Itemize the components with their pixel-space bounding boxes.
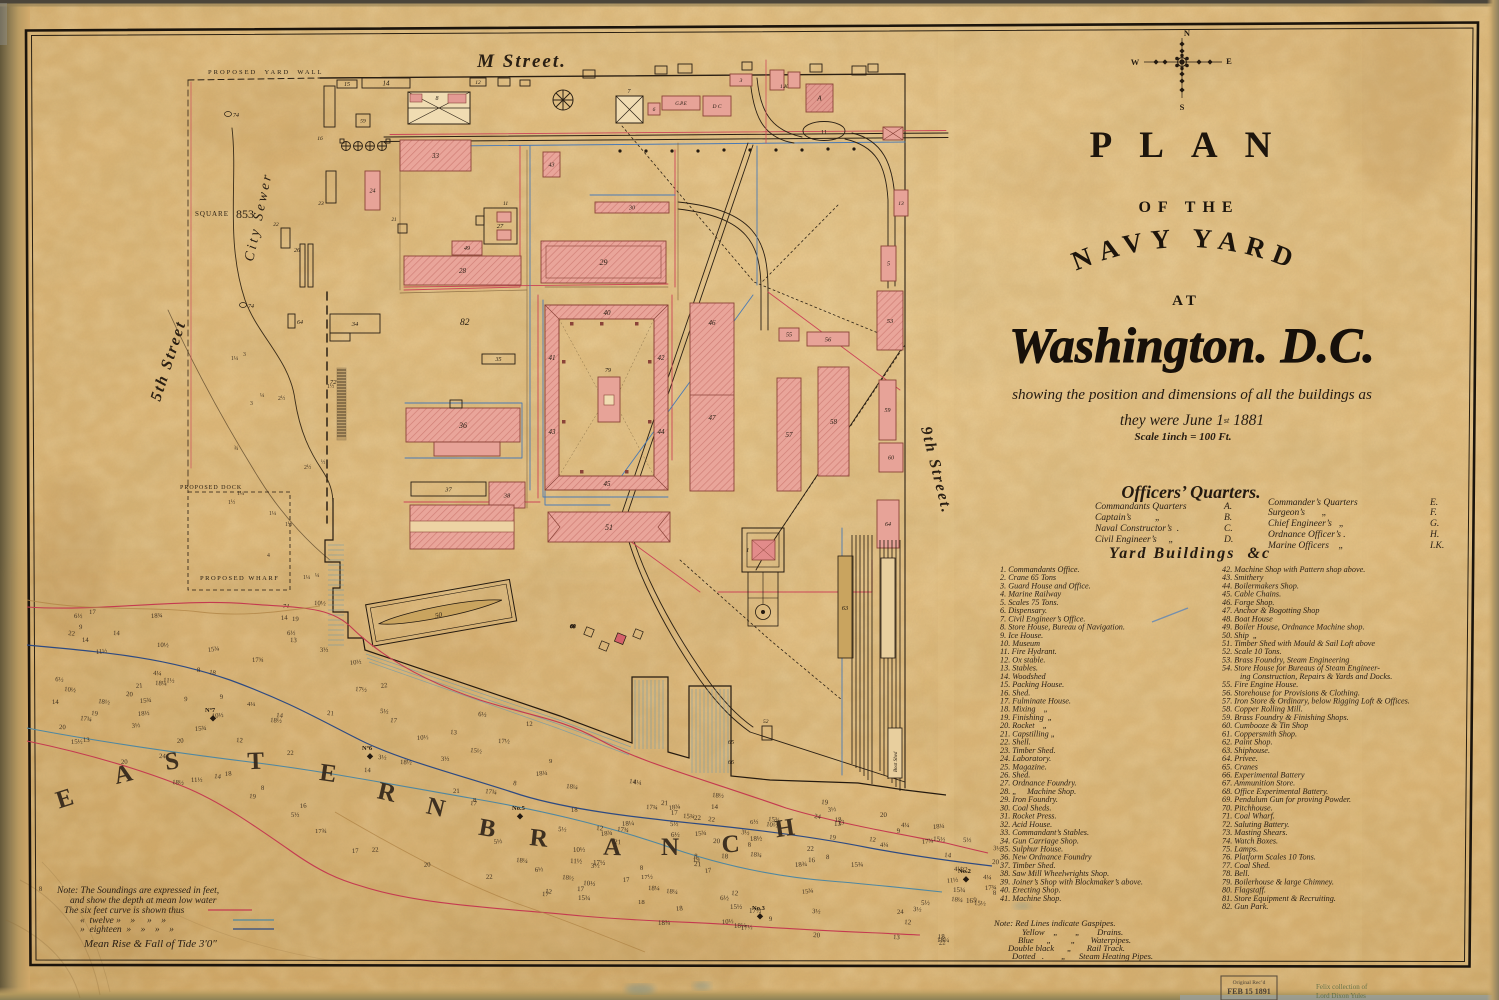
- svg-text:29: 29: [600, 258, 608, 267]
- svg-text:14: 14: [383, 79, 391, 87]
- svg-text:1½: 1½: [228, 499, 236, 506]
- svg-text:3½: 3½: [131, 722, 140, 730]
- svg-text:18¾: 18¾: [794, 860, 807, 869]
- svg-text:18¾: 18¾: [658, 919, 670, 927]
- svg-text:60: 60: [888, 456, 894, 462]
- svg-text:17½: 17½: [641, 874, 653, 881]
- svg-text:16: 16: [317, 136, 323, 142]
- svg-text:The six feet curve is shown th: The six feet curve is shown thus: [64, 905, 185, 916]
- svg-text:Nº6: Nº6: [362, 745, 373, 752]
- svg-text:20: 20: [424, 861, 432, 869]
- svg-text:18: 18: [571, 807, 579, 814]
- svg-text:A.: A.: [1223, 502, 1232, 512]
- svg-text:64: 64: [297, 319, 303, 326]
- svg-text:22: 22: [372, 846, 379, 854]
- svg-text:18: 18: [675, 904, 683, 913]
- svg-text:N: N: [1184, 28, 1191, 38]
- svg-text:1½: 1½: [285, 521, 293, 528]
- svg-text:12: 12: [869, 836, 877, 844]
- svg-text:38: 38: [503, 492, 511, 499]
- svg-text:Marine Officers „: Marine Officers „: [1267, 540, 1344, 551]
- svg-text:PLAN: PLAN: [1090, 125, 1299, 166]
- svg-text:15¾: 15¾: [801, 888, 813, 896]
- svg-text:F.: F.: [1429, 508, 1437, 518]
- svg-text:45: 45: [604, 480, 612, 488]
- svg-text:2½: 2½: [304, 464, 312, 471]
- svg-text:Civil Engineer’s „: Civil Engineer’s „: [1095, 535, 1174, 545]
- svg-text:6½: 6½: [74, 613, 82, 620]
- svg-text:3½: 3½: [320, 647, 329, 654]
- svg-text:79: 79: [605, 368, 611, 374]
- svg-text:12: 12: [904, 918, 912, 927]
- svg-text:30: 30: [628, 206, 635, 212]
- svg-text:18½: 18½: [400, 759, 412, 766]
- svg-text:22: 22: [694, 814, 702, 822]
- svg-text:Chief Engineer’s „: Chief Engineer’s „: [1268, 518, 1344, 529]
- svg-text:Captain’s „: Captain’s „: [1095, 513, 1160, 523]
- svg-text:17: 17: [89, 609, 96, 616]
- svg-text:18¼: 18¼: [622, 819, 635, 828]
- svg-text:82: 82: [460, 318, 470, 328]
- svg-text:64: 64: [885, 521, 891, 528]
- svg-text:OF THE: OF THE: [1138, 199, 1239, 216]
- svg-text:6½: 6½: [55, 676, 64, 684]
- svg-text:18¼: 18¼: [951, 896, 963, 904]
- svg-text:40: 40: [604, 309, 612, 317]
- svg-text:SQUARE: SQUARE: [195, 210, 229, 218]
- svg-text:56: 56: [825, 336, 832, 343]
- svg-text:33: 33: [431, 152, 440, 160]
- svg-text:3: 3: [739, 78, 743, 84]
- svg-text:18¼: 18¼: [566, 783, 578, 791]
- svg-text:Nº7: Nº7: [205, 707, 216, 714]
- svg-text:22: 22: [273, 222, 279, 228]
- svg-text:15¾: 15¾: [578, 894, 590, 902]
- svg-text:47: 47: [709, 414, 717, 422]
- svg-text:18½: 18½: [750, 834, 763, 843]
- svg-text:10½: 10½: [583, 879, 596, 888]
- svg-text:Ordnance Officer’s .: Ordnance Officer’s .: [1268, 529, 1346, 540]
- svg-text:Lord Dixon Yules: Lord Dixon Yules: [1316, 992, 1366, 1000]
- svg-text:3½: 3½: [378, 754, 387, 762]
- svg-text:12: 12: [236, 737, 243, 744]
- svg-text:21: 21: [136, 682, 143, 690]
- svg-text:1¼: 1¼: [231, 356, 239, 362]
- svg-text:Dotted . „ Steam: Dotted . „ Steam Heating Pipes.: [1011, 951, 1153, 961]
- svg-text:18¾: 18¾: [151, 612, 163, 620]
- svg-text:5½: 5½: [963, 837, 971, 844]
- svg-text:10½: 10½: [64, 686, 76, 694]
- svg-text:1¼: 1¼: [269, 511, 277, 517]
- svg-text:22: 22: [807, 845, 815, 853]
- svg-text:22: 22: [380, 682, 388, 690]
- svg-text:20: 20: [59, 724, 67, 731]
- svg-text:5½: 5½: [493, 838, 502, 846]
- svg-text:3½: 3½: [913, 906, 922, 914]
- svg-text:¼: ¼: [260, 393, 265, 399]
- svg-text:14: 14: [52, 699, 59, 706]
- svg-text:and show the depth at mean low: and show the depth at mean low water: [70, 896, 217, 906]
- svg-text:18: 18: [225, 770, 233, 777]
- svg-text:6: 6: [653, 107, 656, 113]
- svg-text:35: 35: [495, 357, 502, 363]
- svg-text:20: 20: [880, 811, 888, 819]
- svg-text:5½: 5½: [670, 821, 678, 828]
- svg-text:18¼: 18¼: [535, 770, 547, 778]
- svg-text:14: 14: [113, 630, 121, 637]
- svg-text:17: 17: [623, 876, 631, 884]
- svg-text:½: ½: [321, 459, 326, 466]
- svg-text:18½: 18½: [562, 874, 574, 882]
- svg-text:27: 27: [497, 223, 504, 230]
- svg-text:53: 53: [887, 318, 894, 325]
- svg-text:B.: B.: [1224, 513, 1232, 523]
- svg-text:20: 20: [177, 737, 185, 744]
- svg-text:66: 66: [728, 760, 734, 766]
- svg-text:Officers’ Quarters.: Officers’ Quarters.: [1121, 482, 1260, 502]
- svg-text:4¼: 4¼: [153, 670, 162, 678]
- svg-text:3½: 3½: [591, 861, 600, 870]
- svg-text:17½: 17½: [498, 738, 510, 745]
- svg-text:74: 74: [233, 112, 239, 119]
- svg-text:Yard Buildings &c: Yard Buildings &c: [1109, 545, 1271, 562]
- svg-text:14: 14: [711, 803, 719, 811]
- svg-text:24: 24: [897, 909, 905, 916]
- svg-text:41: 41: [549, 354, 556, 362]
- svg-text:1: 1: [746, 547, 749, 554]
- svg-text:FEB 15 1891: FEB 15 1891: [1227, 987, 1271, 996]
- svg-text:5½: 5½: [921, 899, 930, 907]
- svg-text:H.: H.: [1429, 530, 1439, 540]
- svg-text:they were June 1st 1881: they were June 1st 1881: [1120, 412, 1264, 429]
- svg-text:18¼: 18¼: [932, 823, 944, 831]
- svg-text:34: 34: [351, 321, 359, 328]
- svg-text:21: 21: [661, 799, 669, 807]
- svg-text:1¼: 1¼: [303, 575, 311, 581]
- svg-text:13: 13: [898, 201, 904, 207]
- svg-text:Mean Rise & Fall of Tide 3′0″: Mean Rise & Fall of Tide 3′0″: [83, 938, 217, 950]
- svg-text:18: 18: [721, 852, 729, 861]
- svg-text:PROPOSED DOCK: PROPOSED DOCK: [180, 485, 242, 491]
- svg-text:22: 22: [708, 816, 715, 824]
- svg-text:49: 49: [464, 245, 470, 252]
- svg-text:E.: E.: [1429, 498, 1438, 508]
- svg-text:82. Gun Park.: 82. Gun Park.: [1222, 902, 1268, 911]
- svg-text:1½: 1½: [327, 383, 335, 390]
- svg-text:W: W: [1131, 57, 1140, 67]
- svg-text:15¾: 15¾: [140, 697, 152, 705]
- svg-text:11½: 11½: [95, 648, 107, 656]
- svg-text:12: 12: [475, 80, 481, 86]
- svg-text:57: 57: [786, 431, 794, 439]
- svg-text:18¼: 18¼: [648, 885, 660, 892]
- svg-text:17: 17: [542, 891, 550, 898]
- svg-text:Surgeon’s „: Surgeon’s „: [1268, 508, 1327, 518]
- svg-text:10½: 10½: [314, 600, 326, 607]
- svg-text:37: 37: [444, 486, 452, 493]
- svg-text:58: 58: [830, 418, 838, 426]
- svg-text:12: 12: [596, 824, 604, 833]
- svg-text:18½: 18½: [138, 710, 150, 718]
- svg-text:10½: 10½: [349, 659, 361, 667]
- svg-text:10½: 10½: [157, 642, 169, 649]
- svg-text:41. Machine Shop.: 41. Machine Shop.: [1000, 894, 1061, 903]
- svg-text:18¾: 18¾: [750, 851, 762, 859]
- svg-text:24: 24: [370, 188, 376, 195]
- svg-text:17¾: 17¾: [252, 657, 264, 664]
- svg-text:4¼: 4¼: [633, 779, 642, 787]
- svg-text:C.: C.: [1224, 524, 1233, 534]
- svg-text:I.K.: I.K.: [1429, 541, 1444, 551]
- svg-text:Scale 1inch = 100 Ft.: Scale 1inch = 100 Ft.: [1134, 431, 1231, 443]
- svg-text:52: 52: [763, 719, 769, 725]
- svg-text:3: 3: [250, 401, 253, 407]
- svg-text:AT: AT: [1172, 293, 1200, 309]
- svg-text:13: 13: [83, 737, 90, 744]
- svg-text:55: 55: [786, 333, 792, 339]
- svg-text:18¼: 18¼: [734, 922, 747, 930]
- svg-text:10½: 10½: [417, 734, 429, 742]
- svg-text:16: 16: [808, 856, 816, 864]
- svg-text:59: 59: [360, 118, 366, 124]
- svg-text:17½: 17½: [355, 686, 367, 694]
- svg-text:S: S: [1180, 102, 1185, 112]
- svg-text:18½: 18½: [172, 779, 184, 787]
- svg-text:18: 18: [638, 899, 645, 906]
- svg-text:No.5: No.5: [512, 805, 526, 812]
- svg-text:Note: The Soundings are expres: Note: The Soundings are expressed in fee…: [56, 885, 219, 896]
- svg-text:21: 21: [327, 710, 334, 717]
- svg-text:23: 23: [318, 201, 324, 207]
- svg-text:3½: 3½: [827, 806, 836, 814]
- svg-text:Original Rec’d: Original Rec’d: [1233, 980, 1266, 986]
- svg-text:13: 13: [834, 820, 842, 828]
- svg-text:5½: 5½: [558, 826, 567, 834]
- svg-text:10½: 10½: [573, 846, 586, 854]
- svg-text:17: 17: [577, 885, 585, 893]
- svg-text:51: 51: [605, 523, 613, 532]
- svg-text:18¼: 18¼: [666, 888, 678, 896]
- svg-text:14: 14: [82, 637, 89, 644]
- svg-text:26: 26: [294, 248, 300, 254]
- svg-text:63: 63: [842, 605, 849, 612]
- svg-text:5½: 5½: [291, 812, 300, 819]
- svg-text:11½: 11½: [946, 877, 958, 885]
- svg-text:15¾: 15¾: [953, 886, 965, 894]
- svg-text:43: 43: [549, 162, 555, 169]
- svg-text:17: 17: [352, 848, 360, 855]
- svg-text:12: 12: [526, 721, 533, 728]
- svg-text:showing the position and dimen: showing the position and dimensions of a…: [1012, 386, 1372, 403]
- svg-text:11½: 11½: [191, 777, 203, 784]
- svg-text:3½: 3½: [741, 829, 750, 837]
- svg-text:68: 68: [570, 624, 576, 630]
- svg-text:11½: 11½: [570, 857, 582, 865]
- svg-text:44: 44: [658, 428, 666, 436]
- svg-text:15¾: 15¾: [694, 830, 706, 838]
- svg-text:15½: 15½: [730, 903, 742, 911]
- svg-text:3½: 3½: [441, 756, 450, 763]
- svg-text:5½: 5½: [380, 708, 389, 716]
- svg-text:» eighteen » » » »: » eighteen » » » »: [80, 925, 174, 935]
- svg-text:15¾: 15¾: [851, 861, 864, 869]
- svg-text:13: 13: [290, 637, 298, 644]
- svg-text:20: 20: [813, 931, 821, 940]
- svg-text:65: 65: [728, 740, 734, 746]
- svg-text:D.: D.: [1223, 535, 1233, 545]
- svg-text:15: 15: [344, 82, 350, 88]
- svg-text:6½: 6½: [671, 831, 680, 839]
- svg-text:10½: 10½: [722, 918, 734, 926]
- svg-text:20: 20: [992, 858, 1000, 866]
- svg-text:6½: 6½: [478, 711, 487, 719]
- svg-text:11: 11: [503, 201, 508, 207]
- svg-text:18¼: 18¼: [516, 857, 528, 865]
- svg-text:22: 22: [287, 750, 294, 757]
- svg-text:4: 4: [267, 553, 270, 559]
- svg-text:T: T: [247, 748, 265, 776]
- svg-text:Felix collection of: Felix collection of: [1316, 983, 1368, 991]
- svg-text:¾: ¾: [234, 445, 239, 452]
- svg-text:4¼: 4¼: [247, 701, 255, 708]
- svg-text:20: 20: [121, 759, 129, 766]
- svg-text:19: 19: [821, 798, 829, 807]
- svg-text:4¼: 4¼: [901, 822, 910, 829]
- svg-text:1¼: 1¼: [237, 491, 245, 497]
- svg-text:3: 3: [243, 352, 246, 358]
- svg-text:17¾: 17¾: [315, 828, 327, 835]
- svg-text:PROPOSED WHARF: PROPOSED WHARF: [200, 575, 279, 582]
- svg-text:15½: 15½: [71, 739, 83, 746]
- svg-text:No.3: No.3: [752, 905, 766, 912]
- svg-text:1.K: 1.K: [780, 84, 788, 90]
- svg-text:42: 42: [658, 354, 666, 362]
- svg-text:M Street.: M Street.: [476, 51, 567, 72]
- svg-text:22: 22: [68, 630, 75, 638]
- svg-text:74: 74: [248, 303, 254, 310]
- svg-text:36: 36: [458, 421, 467, 430]
- svg-text:20: 20: [713, 837, 721, 845]
- svg-text:A: A: [816, 94, 822, 102]
- svg-text:16: 16: [300, 802, 308, 809]
- svg-text:E: E: [1226, 56, 1232, 66]
- svg-text:43: 43: [549, 428, 557, 436]
- svg-text:4¼: 4¼: [983, 874, 992, 882]
- svg-text:Washington. D.C.: Washington. D.C.: [1009, 317, 1375, 373]
- svg-text:G.P.E: G.P.E: [675, 102, 687, 107]
- svg-text:12: 12: [731, 889, 739, 898]
- svg-text:21: 21: [392, 218, 397, 223]
- svg-text:Commandants Quarters: Commandants Quarters: [1095, 502, 1187, 512]
- svg-text:15½: 15½: [470, 747, 482, 755]
- svg-text:13: 13: [893, 934, 901, 941]
- svg-text:14: 14: [281, 614, 289, 621]
- svg-text:14: 14: [364, 767, 372, 774]
- svg-text:11½: 11½: [163, 677, 175, 685]
- svg-text:PROPOSED YARD WALL: PROPOSED YARD WALL: [208, 69, 323, 76]
- svg-text:18½: 18½: [712, 792, 724, 800]
- svg-text:22: 22: [486, 874, 493, 881]
- svg-text:8: 8: [436, 96, 439, 102]
- svg-text:46: 46: [709, 319, 717, 327]
- svg-text:20: 20: [126, 691, 134, 698]
- svg-text:59: 59: [885, 408, 891, 414]
- svg-text:2½: 2½: [278, 395, 286, 402]
- svg-text:6½: 6½: [750, 819, 758, 826]
- svg-text:Boat Shed: Boat Shed: [894, 751, 899, 772]
- svg-text:D C: D C: [711, 104, 721, 110]
- svg-text:17: 17: [671, 808, 679, 817]
- svg-text:24: 24: [159, 753, 167, 760]
- svg-text:G.: G.: [1430, 519, 1439, 529]
- svg-text:6½: 6½: [720, 894, 729, 902]
- svg-text:5: 5: [887, 262, 890, 268]
- svg-text:¼: ¼: [315, 573, 320, 579]
- svg-text:4¼: 4¼: [880, 842, 889, 849]
- svg-text:21: 21: [453, 788, 460, 795]
- svg-text:14: 14: [944, 851, 952, 860]
- svg-text:15¾: 15¾: [195, 725, 207, 733]
- svg-text:17¾: 17¾: [646, 804, 658, 812]
- svg-text:11: 11: [821, 129, 827, 136]
- svg-text:No.2: No.2: [958, 868, 971, 875]
- svg-text:15½: 15½: [933, 835, 946, 844]
- svg-text:28: 28: [459, 267, 467, 275]
- svg-text:21: 21: [694, 860, 702, 868]
- svg-text:Naval Constructor’s .: Naval Constructor’s .: [1094, 524, 1179, 534]
- svg-text:3½: 3½: [812, 908, 821, 916]
- svg-text:18¼: 18¼: [937, 936, 949, 944]
- svg-text:Commander’s Quarters: Commander’s Quarters: [1268, 498, 1358, 508]
- svg-text:21: 21: [614, 838, 622, 846]
- svg-text:6½: 6½: [534, 866, 543, 874]
- svg-text:13: 13: [450, 729, 458, 737]
- svg-text:19: 19: [292, 616, 299, 623]
